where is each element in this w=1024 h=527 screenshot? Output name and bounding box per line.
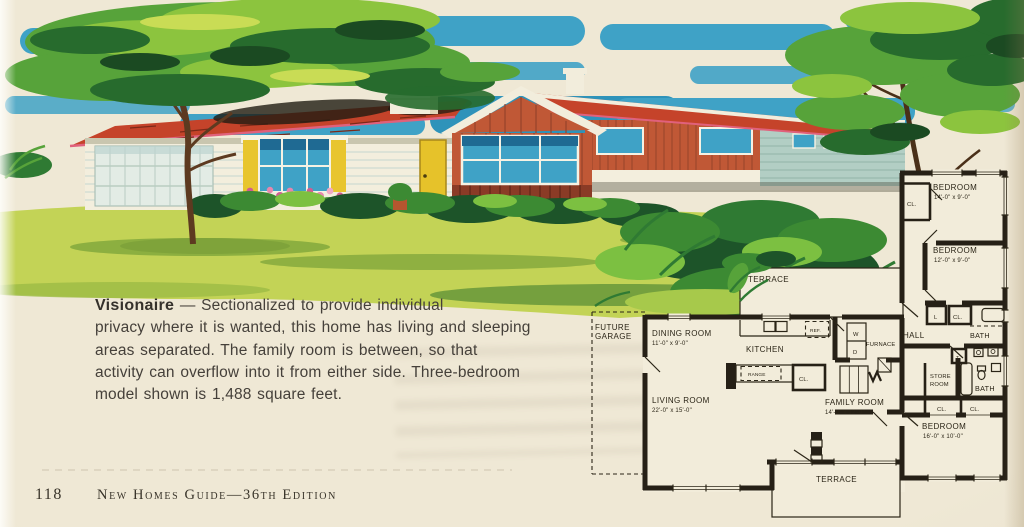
kitchen-label: KITCHEN xyxy=(746,345,784,354)
range-label: RANGE xyxy=(748,372,766,378)
bedroom-dim: 16'-0" x 10'-0" xyxy=(923,434,963,440)
bedroom-dim: 12'-0" x 9'-0" xyxy=(934,258,970,264)
bedroom-label: BEDROOM xyxy=(933,246,977,255)
page-number: 118 xyxy=(35,486,63,504)
closet-label: CL. xyxy=(799,377,809,383)
closet-label: CL. xyxy=(937,407,947,413)
furnace-label: FURNACE xyxy=(866,342,895,348)
bedroom-dim: 14'-0" x 9'-0" xyxy=(934,195,970,201)
closet-label: CL. xyxy=(907,202,917,208)
ref-label: REF. xyxy=(810,328,821,334)
family-room-label: FAMILY ROOM xyxy=(825,398,884,407)
description-line: privacy where it is wanted, this home ha… xyxy=(95,317,531,339)
living-room-label: LIVING ROOM xyxy=(652,396,710,405)
terrace-label: TERRACE xyxy=(816,475,857,484)
toilet-label: T xyxy=(956,355,959,361)
bath-label: BATH xyxy=(975,384,995,393)
future-garage-label: FUTURE xyxy=(595,323,630,332)
description-line: areas separated. The family room is betw… xyxy=(95,340,531,362)
hall-label: HALL xyxy=(903,331,925,340)
living-room-dim: 22'-0" x 15'-0" xyxy=(652,408,692,414)
picture-window xyxy=(241,135,348,192)
model-name: Visionaire xyxy=(95,297,174,314)
terrace-label: TERRACE xyxy=(748,275,789,284)
future-garage-label: GARAGE xyxy=(595,332,632,341)
bath-label: BATH xyxy=(970,331,990,340)
dryer-label: D xyxy=(853,350,857,356)
description-line: Visionaire — Sectionalized to provide in… xyxy=(95,295,531,317)
family-room-dim: 14'-0" x 12'-0" xyxy=(825,410,865,416)
store-room-label: STORE xyxy=(930,374,951,380)
curtain-left xyxy=(243,140,259,192)
closet-label: CL. xyxy=(970,407,980,413)
catalog-page: TERRACE TERRACE FUTURE GARAGE DINING ROO… xyxy=(0,0,1024,527)
dining-room-dim: 11'-0" x 9'-0" xyxy=(652,341,688,347)
bedroom-label: BEDROOM xyxy=(933,183,977,192)
description-line: activity can overflow into it from eithe… xyxy=(95,362,531,384)
bedroom-label: BEDROOM xyxy=(922,422,966,431)
store-room-label: ROOM xyxy=(930,382,949,388)
garage-door xyxy=(95,146,213,206)
curtain-right xyxy=(330,140,346,192)
linen-label: L xyxy=(934,315,938,321)
closet-label: CL. xyxy=(953,315,963,321)
edition-title: New Homes Guide—36th Edition xyxy=(97,487,337,504)
floor-plan: TERRACE TERRACE FUTURE GARAGE DINING ROO… xyxy=(590,160,1024,527)
description-text: Visionaire — Sectionalized to provide in… xyxy=(95,295,531,406)
dining-room-label: DINING ROOM xyxy=(652,329,712,338)
washer-label: W xyxy=(853,332,859,338)
description-line: model shown is 1,488 square feet. xyxy=(95,384,531,406)
